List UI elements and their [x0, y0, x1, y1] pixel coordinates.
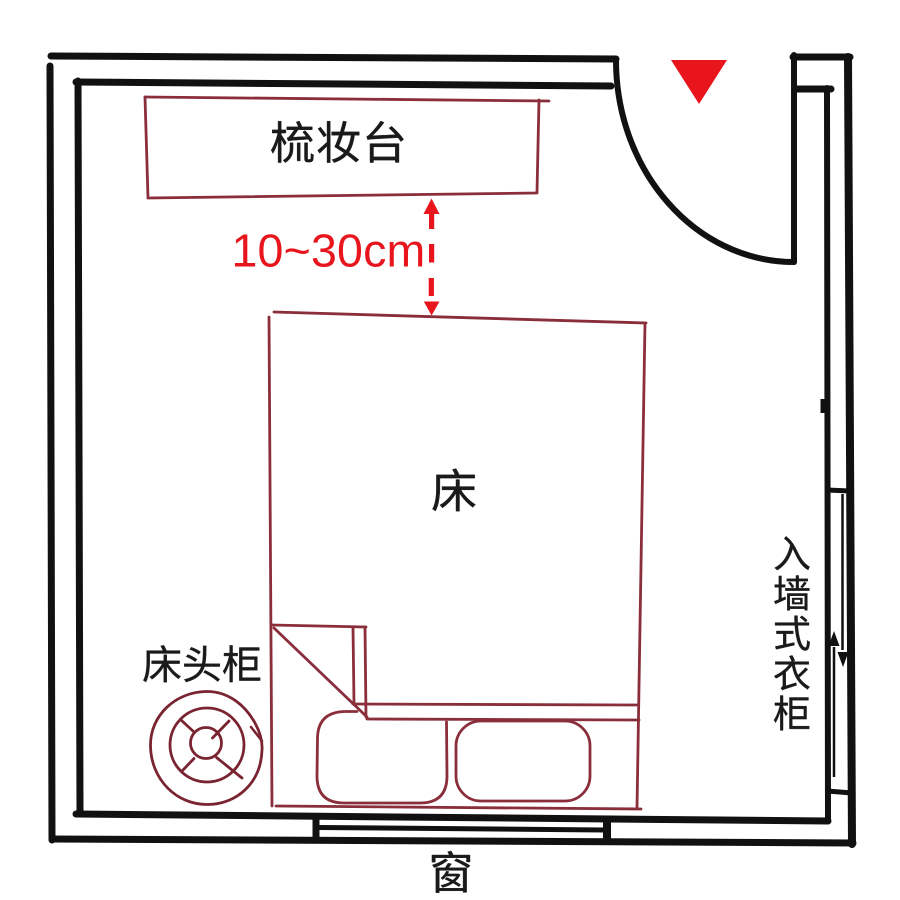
svg-text:10~30cm: 10~30cm: [232, 225, 426, 277]
